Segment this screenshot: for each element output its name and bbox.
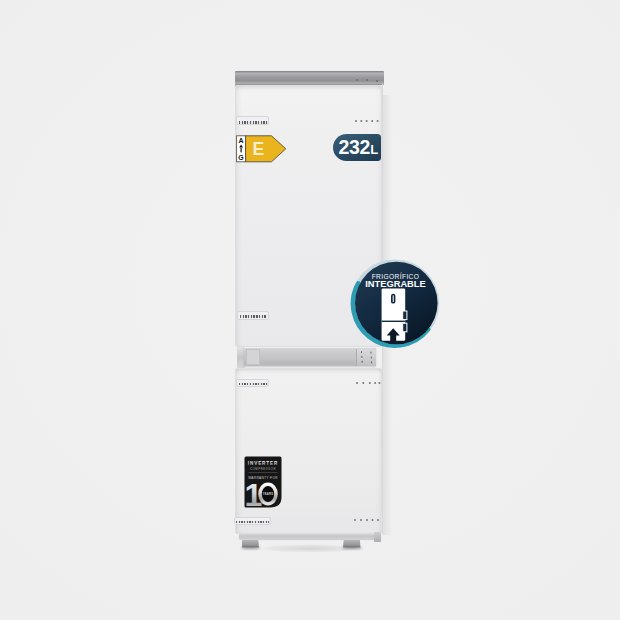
svg-text:A: A: [239, 137, 244, 144]
svg-text:E: E: [253, 139, 265, 159]
svg-text:COMPRESSOR: COMPRESSOR: [250, 467, 276, 471]
svg-text:INTEGRABLE: INTEGRABLE: [365, 279, 425, 289]
svg-text:G: G: [238, 154, 244, 161]
svg-text:YEARS: YEARS: [263, 492, 273, 496]
svg-text:INVERTER: INVERTER: [248, 461, 278, 466]
